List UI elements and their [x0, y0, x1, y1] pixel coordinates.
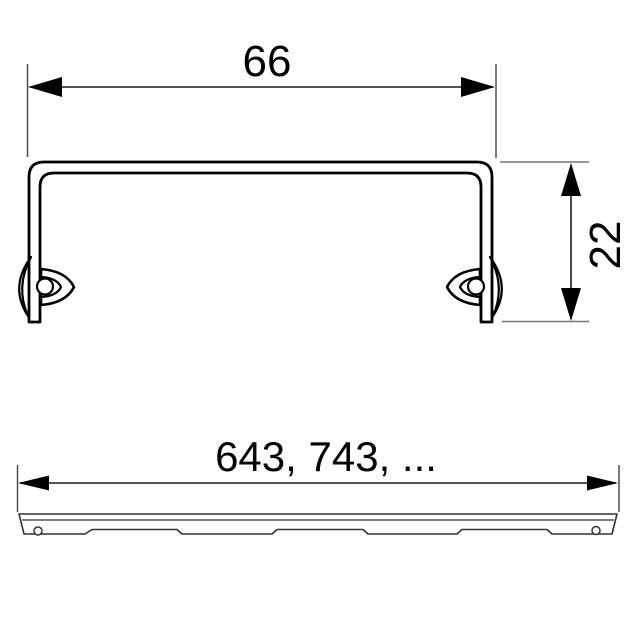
grate-hole-right: [592, 527, 600, 535]
grate-side-view: [19, 514, 617, 535]
left-clip-detail: [19, 257, 74, 316]
arrow-right-icon: [461, 77, 495, 97]
grate-hole-left: [34, 527, 42, 535]
right-clip-circle: [468, 279, 484, 295]
arrow-down-icon: [561, 288, 581, 321]
arrow-left-icon: [28, 77, 62, 97]
right-clip-detail: [447, 257, 502, 316]
cross-section-profile: [19, 162, 502, 322]
arrow-right-icon: [587, 476, 618, 491]
width-label: 66: [243, 37, 292, 86]
technical-drawing-page: 66 2: [0, 0, 636, 637]
grate-outline: [19, 514, 617, 534]
width-dimension: 66: [28, 37, 497, 158]
length-dimension: 643, 743, ...: [18, 433, 620, 512]
arrow-up-icon: [561, 163, 581, 196]
length-label: 643, 743, ...: [215, 433, 437, 480]
height-dimension: 22: [500, 162, 630, 322]
left-clip-circle: [37, 279, 53, 295]
arrow-left-icon: [18, 476, 49, 491]
drawing-canvas: 66 2: [0, 0, 636, 637]
profile-outline: [29, 162, 492, 322]
height-label: 22: [581, 221, 630, 270]
